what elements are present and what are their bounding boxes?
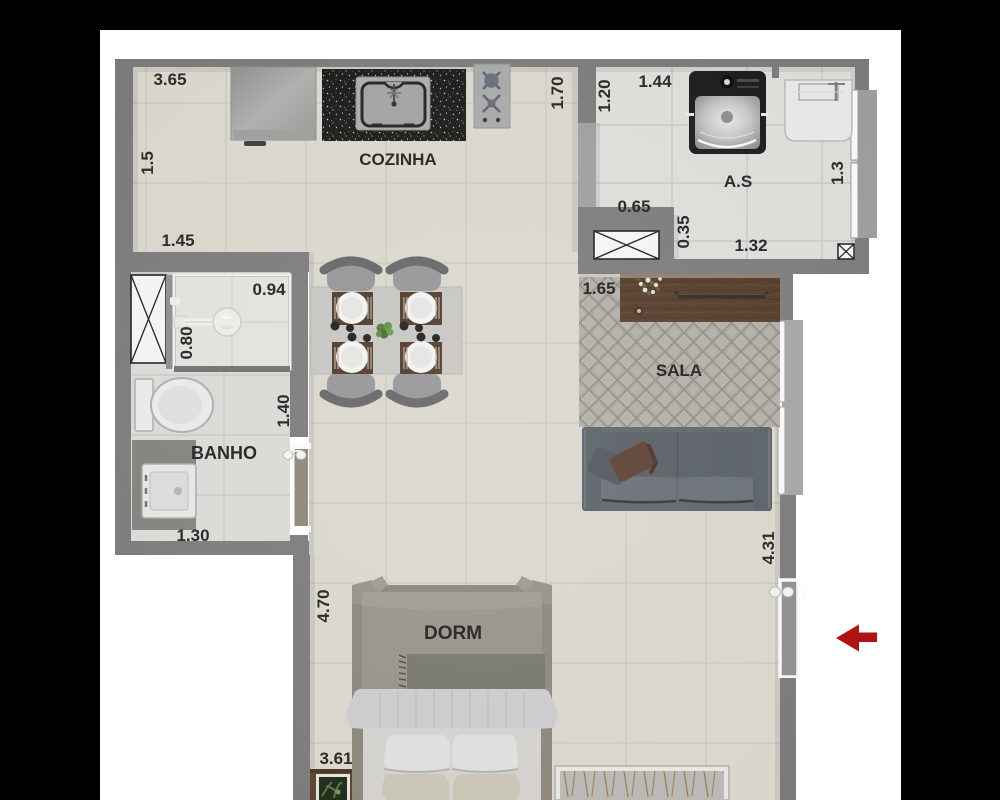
svg-text:4.70: 4.70 xyxy=(314,589,333,622)
svg-text:COZINHA: COZINHA xyxy=(359,150,436,169)
svg-text:1.32: 1.32 xyxy=(734,236,767,255)
svg-text:1.45: 1.45 xyxy=(161,231,194,250)
svg-text:BANHO: BANHO xyxy=(191,443,257,463)
svg-text:1.5: 1.5 xyxy=(138,151,157,175)
svg-text:1.20: 1.20 xyxy=(595,79,614,112)
svg-text:1.70: 1.70 xyxy=(548,76,567,109)
svg-text:4.31: 4.31 xyxy=(759,531,778,564)
svg-text:1.3: 1.3 xyxy=(828,161,847,185)
svg-text:1.44: 1.44 xyxy=(638,72,672,91)
svg-text:0.65: 0.65 xyxy=(617,197,650,216)
svg-text:DORM: DORM xyxy=(424,623,482,644)
svg-text:0.35: 0.35 xyxy=(674,215,693,248)
svg-text:0.94: 0.94 xyxy=(252,280,286,299)
svg-text:1.40: 1.40 xyxy=(274,394,293,427)
svg-text:A.S: A.S xyxy=(724,172,752,191)
svg-text:3.65: 3.65 xyxy=(153,70,186,89)
svg-text:1.30: 1.30 xyxy=(176,526,209,545)
svg-text:0.80: 0.80 xyxy=(177,326,196,359)
svg-text:SALA: SALA xyxy=(656,361,702,380)
svg-text:1.65: 1.65 xyxy=(582,279,615,298)
svg-text:3.61: 3.61 xyxy=(319,749,352,768)
